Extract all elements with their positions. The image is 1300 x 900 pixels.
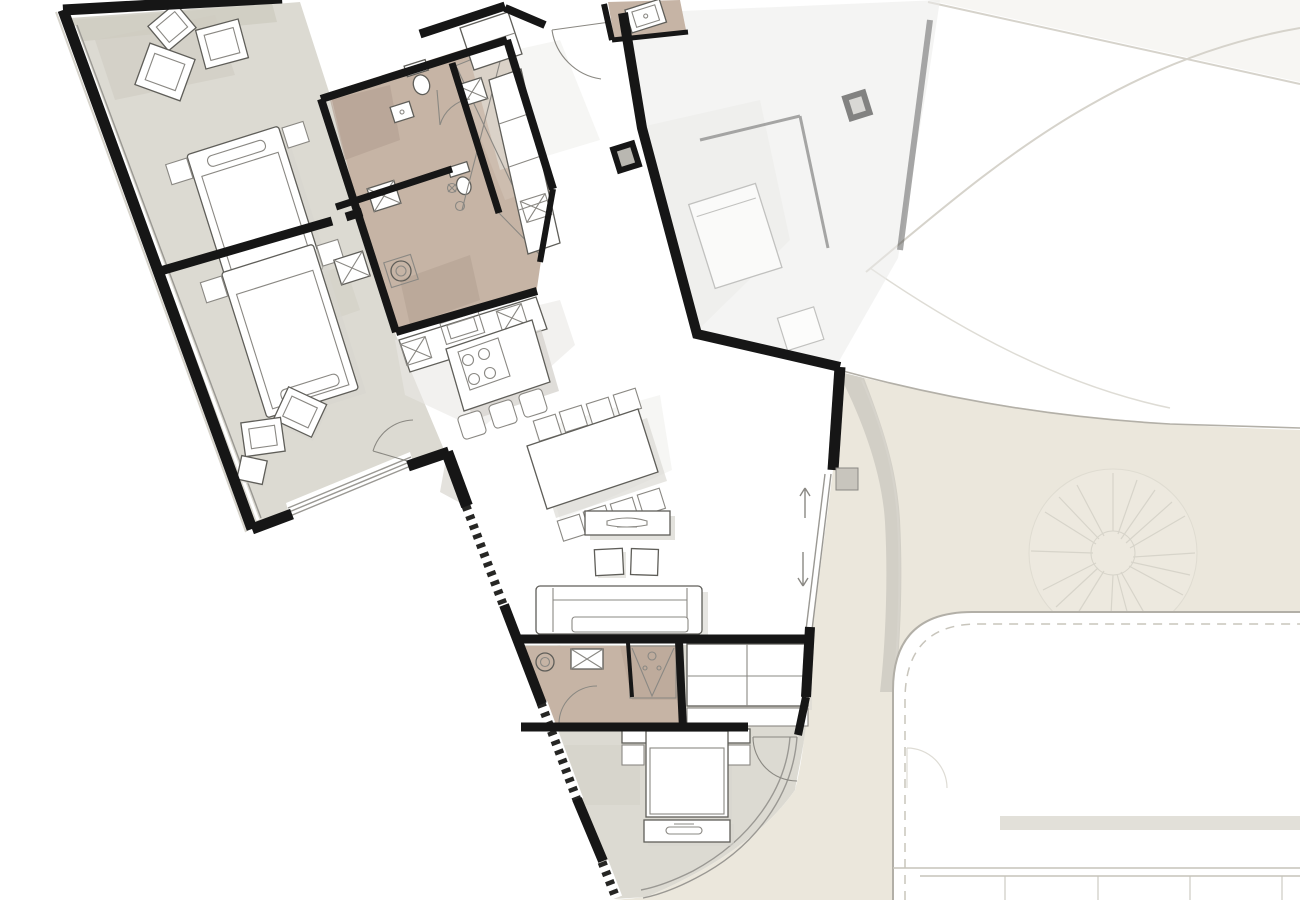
foot-bench xyxy=(644,820,734,846)
sofa xyxy=(536,586,708,640)
nightstand xyxy=(728,745,750,765)
faint-context-band xyxy=(866,0,1300,408)
apartment-floor-plan xyxy=(0,0,1300,900)
closet xyxy=(687,644,812,726)
double-bed xyxy=(646,731,728,817)
tv-sideboard xyxy=(585,511,670,535)
floor-plan-page xyxy=(0,0,1300,900)
gray-post xyxy=(836,468,858,490)
driveway xyxy=(893,612,1300,900)
nightstand xyxy=(622,745,644,765)
appliance-x-box xyxy=(571,649,603,669)
